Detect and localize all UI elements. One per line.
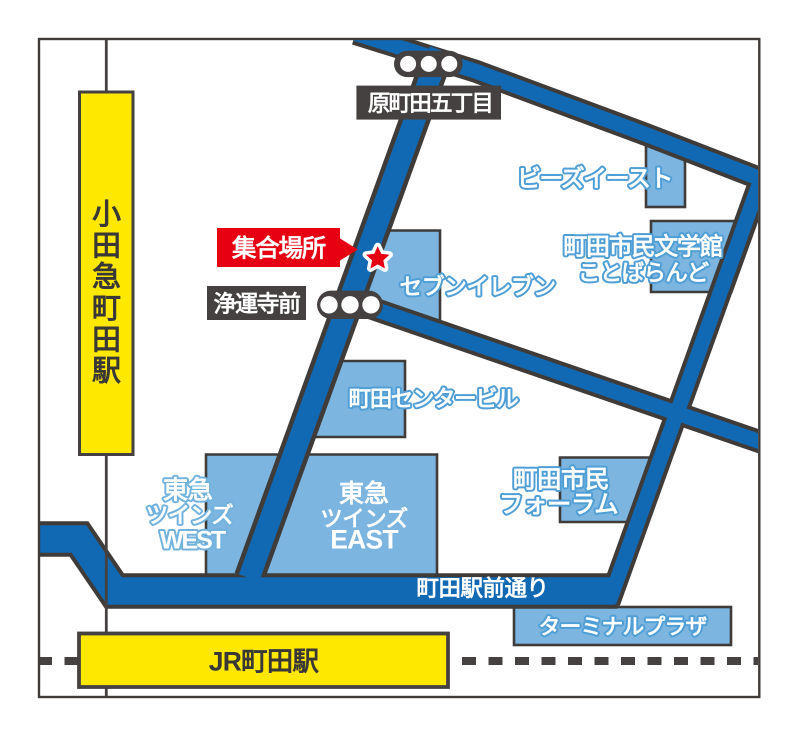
svg-text:町田市民文学館: 町田市民文学館 — [563, 233, 722, 261]
svg-text:フォーラム: フォーラム — [499, 492, 618, 519]
svg-text:JR町田駅: JR町田駅 — [209, 647, 320, 677]
svg-text:田: 田 — [92, 324, 121, 356]
svg-text:町: 町 — [92, 293, 121, 325]
svg-text:町田センタービル: 町田センタービル — [349, 387, 519, 412]
svg-text:ターミナルプラザ: ターミナルプラザ — [539, 614, 708, 639]
svg-text:ビーズイースト: ビーズイースト — [517, 165, 672, 193]
svg-text:セブンイレブン: セブンイレブン — [399, 274, 555, 300]
svg-text:田: 田 — [92, 230, 121, 262]
svg-text:ツインズ: ツインズ — [146, 502, 235, 528]
svg-text:東急: 東急 — [163, 476, 213, 504]
svg-text:町田市民: 町田市民 — [513, 465, 609, 494]
svg-text:町田駅前通り: 町田駅前通り — [416, 575, 548, 601]
svg-text:集合場所: 集合場所 — [231, 234, 326, 263]
svg-text:ことばらんど: ことばらんど — [578, 261, 710, 286]
svg-text:原町田五丁目: 原町田五丁目 — [368, 91, 492, 116]
svg-text:WEST: WEST — [160, 527, 226, 555]
svg-text:駅: 駅 — [92, 356, 121, 388]
svg-text:浄運寺前: 浄運寺前 — [214, 291, 302, 317]
svg-text:EAST: EAST — [330, 525, 398, 555]
svg-text:東急: 東急 — [339, 480, 389, 508]
svg-text:小: 小 — [92, 198, 121, 231]
svg-text:急: 急 — [92, 261, 121, 294]
